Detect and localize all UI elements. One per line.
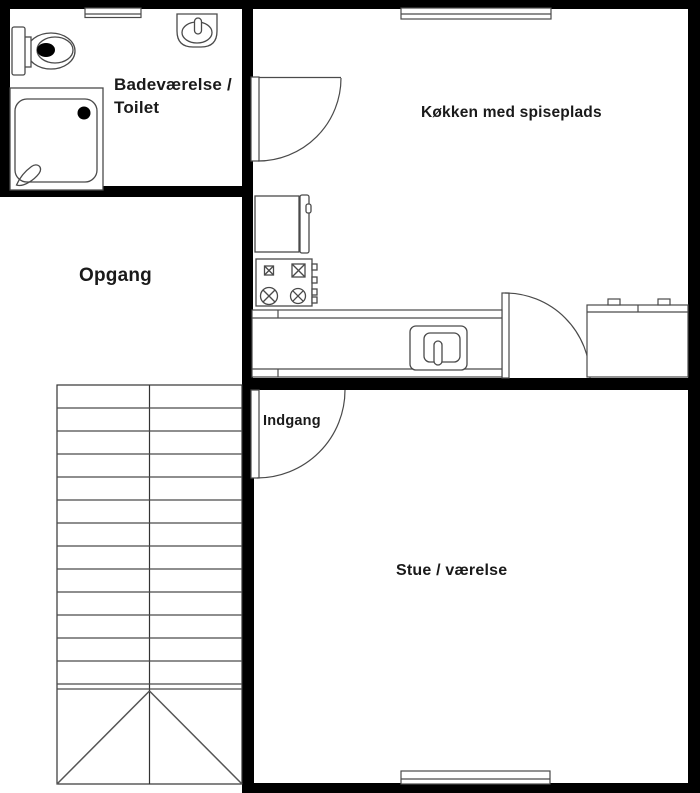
toilet xyxy=(12,27,75,75)
kitchen-counter-right xyxy=(587,299,688,377)
kitchen-rear-door-leaf xyxy=(502,293,509,378)
wall-right xyxy=(688,0,700,793)
room-label-stairwell: Opgang xyxy=(79,265,152,287)
entrance-door xyxy=(251,390,345,478)
stove-knob xyxy=(312,264,317,270)
kitchen-rear-door xyxy=(502,293,590,378)
wall-left-upper xyxy=(0,0,10,197)
room-label-bathroom: Badeværelse / Toilet xyxy=(114,74,256,120)
room-label-kitchen: Køkken med spiseplads xyxy=(421,104,602,122)
living-room-window xyxy=(401,771,550,784)
room-label-living-room: Stue / værelse xyxy=(396,562,507,580)
bathroom-sink xyxy=(177,14,217,47)
stove-knob xyxy=(312,277,317,283)
toilet-cistern xyxy=(12,27,25,75)
stove-burner xyxy=(292,264,305,277)
stove-knob xyxy=(312,289,317,295)
entrance-door-swing xyxy=(257,390,345,478)
toilet-seat-dot xyxy=(37,43,55,57)
stove xyxy=(256,259,317,306)
kitchen-rear-door-swing xyxy=(505,293,590,378)
kitchen-door xyxy=(251,77,341,161)
refrigerator-handle xyxy=(306,204,311,213)
entrance-door-leaf xyxy=(251,390,259,478)
stove-burner xyxy=(265,266,274,275)
kitchen-door-swing xyxy=(258,78,341,161)
wall-kitchen-living-divider xyxy=(242,378,700,390)
room-label-entrance: Indgang xyxy=(263,413,321,429)
wall-center-vertical xyxy=(242,0,253,390)
counter-item xyxy=(608,299,620,305)
bathroom-window xyxy=(85,8,141,18)
staircase xyxy=(57,385,242,784)
kitchen-sink xyxy=(410,326,467,370)
shower-drain xyxy=(78,107,91,120)
shower-tray xyxy=(10,88,103,190)
kitchen-sink-faucet xyxy=(434,341,442,365)
kitchen-window xyxy=(401,8,551,19)
shower xyxy=(10,88,103,190)
refrigerator-body xyxy=(255,196,299,252)
sink-faucet xyxy=(195,18,202,34)
floor-plan: Badeværelse / Toilet Opgang Køkken med s… xyxy=(0,0,700,793)
counter-item xyxy=(658,299,670,305)
refrigerator xyxy=(255,195,311,253)
stove-knob xyxy=(312,297,317,303)
